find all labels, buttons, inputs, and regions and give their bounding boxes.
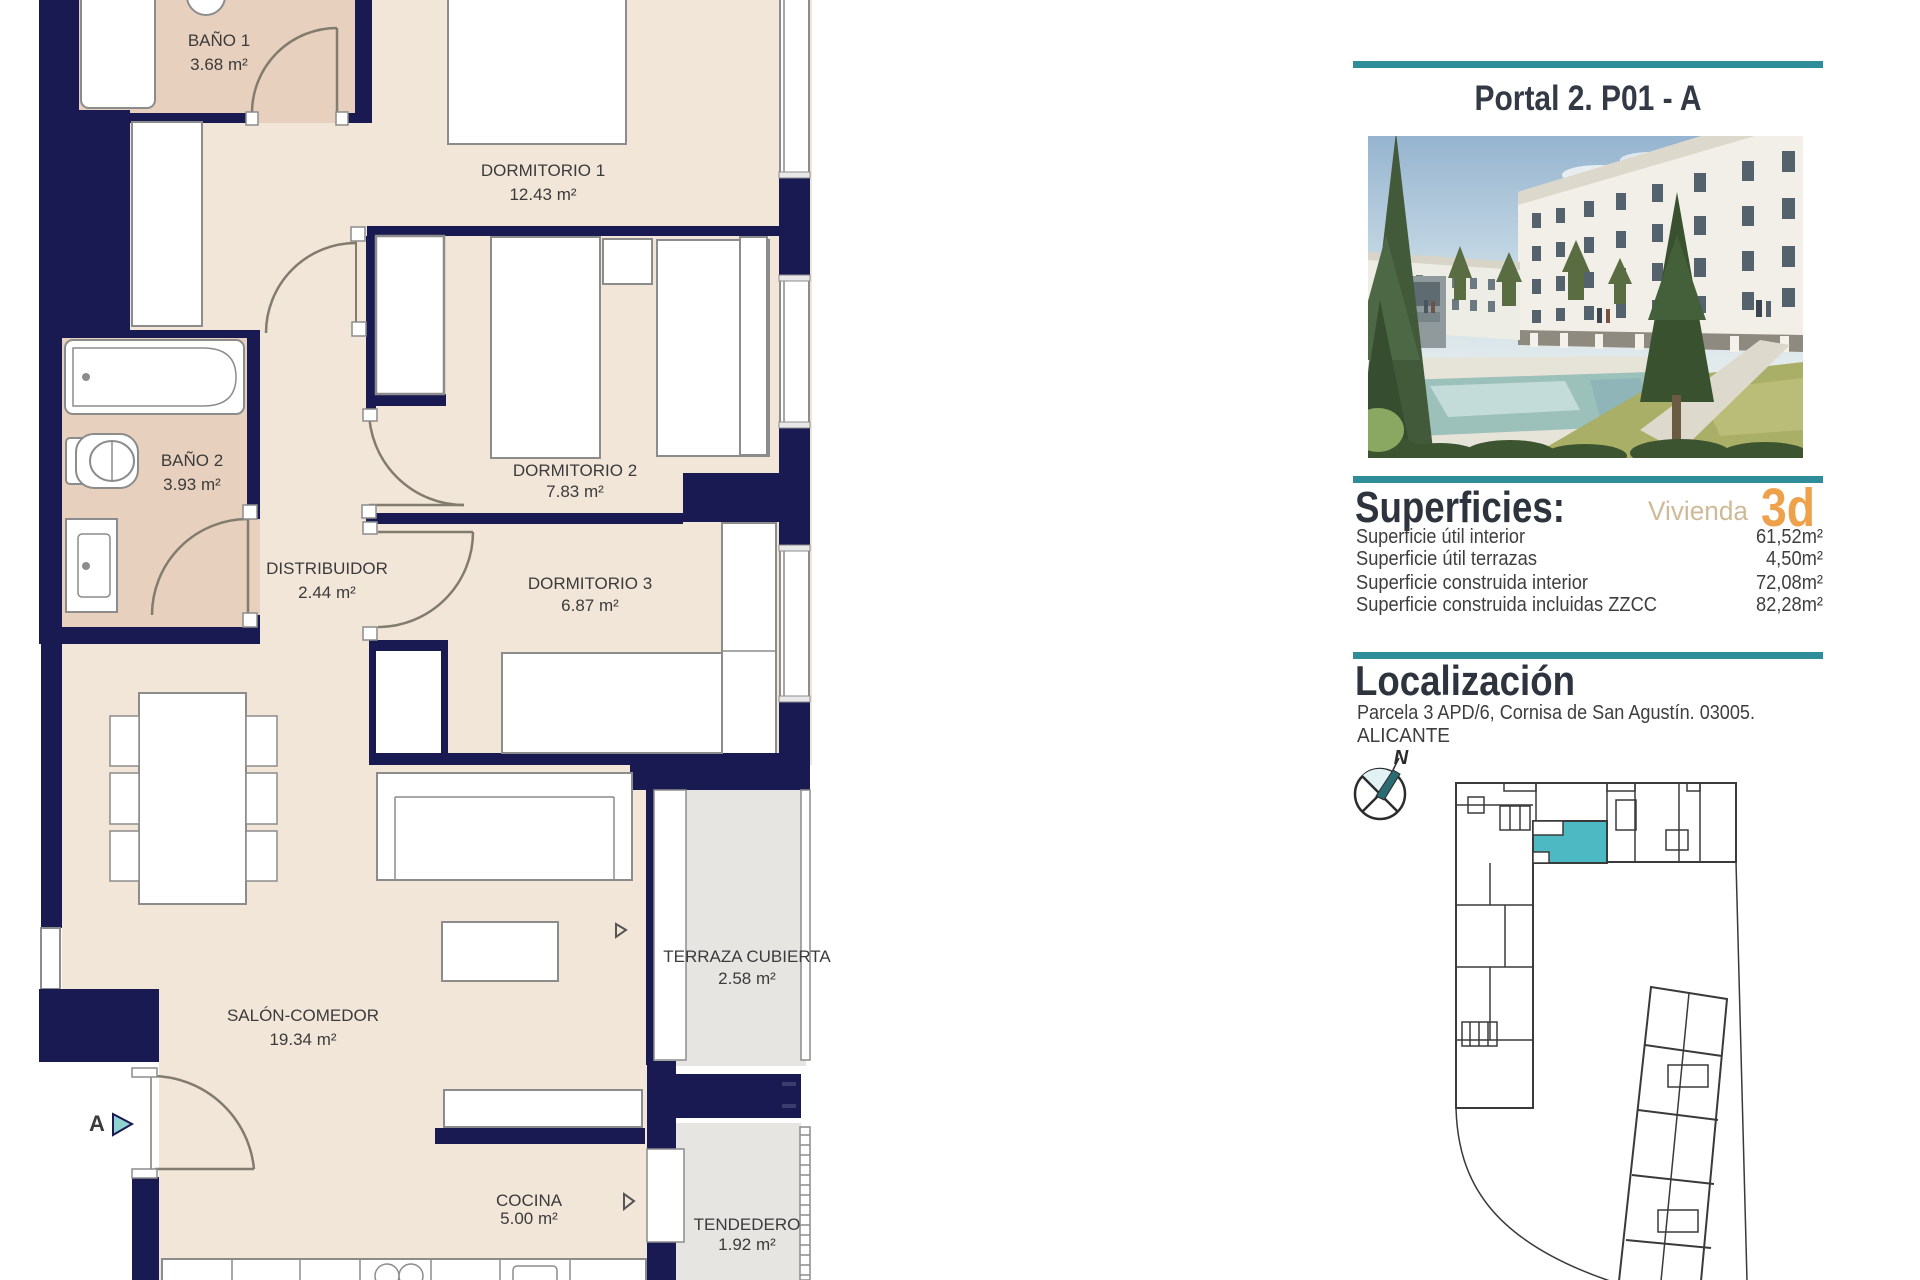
svg-text:ALICANTE: ALICANTE [1357,725,1450,747]
svg-text:6.87 m²: 6.87 m² [561,596,619,615]
svg-text:19.34 m²: 19.34 m² [269,1030,336,1049]
svg-text:2.44 m²: 2.44 m² [298,583,356,602]
svg-text:DISTRIBUIDOR: DISTRIBUIDOR [266,559,388,578]
svg-text:72,08m²: 72,08m² [1756,572,1823,594]
svg-text:DORMITORIO 2: DORMITORIO 2 [513,461,637,480]
svg-text:BAÑO 1: BAÑO 1 [188,31,250,50]
svg-text:SALÓN-COMEDOR: SALÓN-COMEDOR [227,1006,379,1025]
svg-text:Superficies:: Superficies: [1355,483,1565,532]
svg-text:DORMITORIO 3: DORMITORIO 3 [528,574,652,593]
svg-text:Superficie útil terrazas: Superficie útil terrazas [1356,548,1537,570]
svg-text:Superficie útil interior: Superficie útil interior [1356,526,1525,548]
svg-text:BAÑO 2: BAÑO 2 [161,451,223,470]
svg-text:Superficie construida incluida: Superficie construida incluidas ZZCC [1356,594,1657,616]
svg-text:Parcela 3 APD/6, Cornisa de Sa: Parcela 3 APD/6, Cornisa de San Agustín.… [1357,702,1755,724]
svg-text:82,28m²: 82,28m² [1756,594,1823,616]
svg-text:TENDEDERO: TENDEDERO [694,1215,801,1234]
svg-text:3.93 m²: 3.93 m² [163,475,221,494]
svg-text:4,50m²: 4,50m² [1766,548,1823,570]
svg-text:Vivienda: Vivienda [1648,496,1749,526]
svg-text:12.43 m²: 12.43 m² [509,185,576,204]
svg-text:Localización: Localización [1355,657,1575,704]
svg-text:Superficie construida interior: Superficie construida interior [1356,572,1588,594]
svg-text:DORMITORIO 1: DORMITORIO 1 [481,161,605,180]
svg-text:61,52m²: 61,52m² [1756,526,1823,548]
svg-text:TERRAZA CUBIERTA: TERRAZA CUBIERTA [663,947,831,966]
svg-text:1.92 m²: 1.92 m² [718,1235,776,1254]
svg-text:7.83 m²: 7.83 m² [546,482,604,501]
svg-text:5.00 m²: 5.00 m² [500,1209,558,1228]
svg-text:A: A [89,1111,105,1136]
svg-text:3.68 m²: 3.68 m² [190,55,248,74]
svg-text:2.58 m²: 2.58 m² [718,969,776,988]
svg-text:COCINA: COCINA [496,1191,563,1210]
svg-text:N: N [1394,747,1409,769]
svg-text:Portal 2. P01 - A: Portal 2. P01 - A [1475,79,1702,118]
